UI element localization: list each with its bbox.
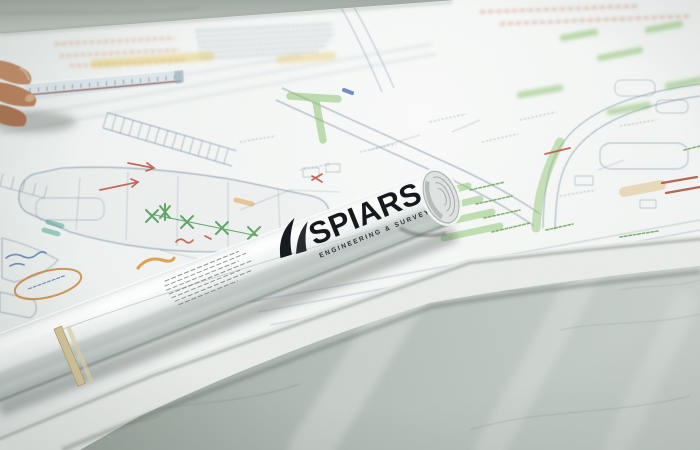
scene-canvas: SPIARS ENGINEERING & SURVEYING: [0, 0, 700, 450]
vignette: [0, 0, 700, 450]
photo-rolled-blueprints: A rolled engineering drawing tube printe…: [0, 0, 700, 450]
